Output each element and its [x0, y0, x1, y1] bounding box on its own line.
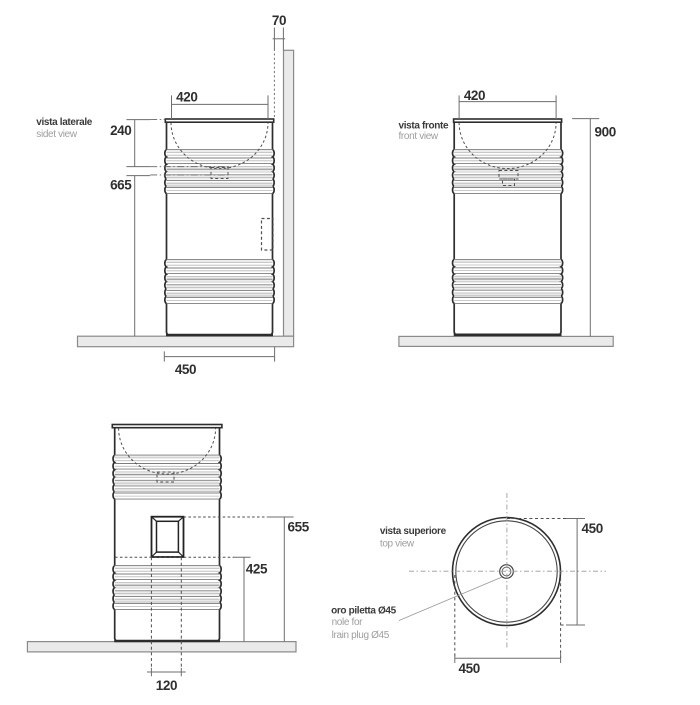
svg-text:front view: front view	[399, 131, 439, 142]
svg-text:oro piletta Ø45: oro piletta Ø45	[331, 606, 397, 617]
svg-text:420: 420	[176, 90, 197, 105]
svg-text:420: 420	[464, 88, 485, 103]
svg-text:655: 655	[288, 519, 310, 534]
svg-text:70: 70	[272, 13, 286, 28]
svg-text:450: 450	[582, 521, 603, 536]
svg-text:425: 425	[246, 561, 268, 576]
svg-text:665: 665	[110, 178, 132, 193]
svg-text:lrain plug Ø45: lrain plug Ø45	[332, 630, 390, 641]
svg-text:450: 450	[459, 661, 480, 676]
svg-text:nole for: nole for	[332, 617, 364, 628]
svg-text:240: 240	[110, 123, 131, 138]
svg-text:vista superiore: vista superiore	[380, 526, 447, 537]
svg-text:450: 450	[175, 362, 196, 377]
svg-text:900: 900	[595, 125, 616, 140]
svg-text:top view: top view	[380, 539, 415, 550]
svg-text:vista laterale: vista laterale	[36, 117, 92, 128]
svg-text:120: 120	[156, 678, 177, 693]
svg-text:sidet view: sidet view	[36, 129, 78, 140]
